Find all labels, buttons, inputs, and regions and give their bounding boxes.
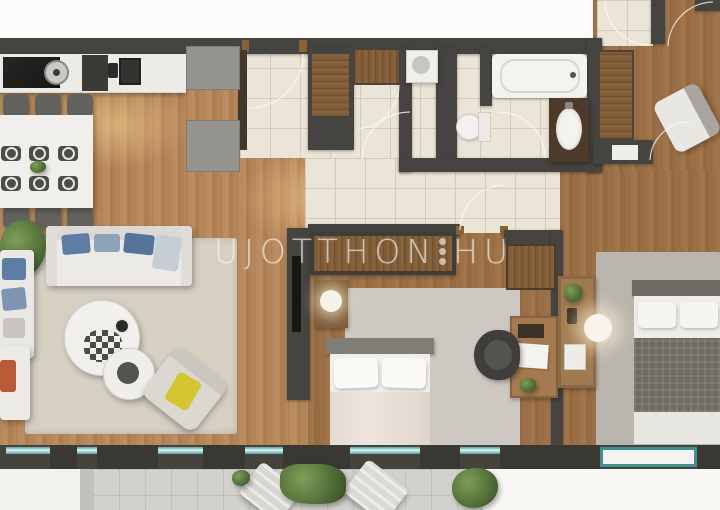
desk-papers	[515, 343, 549, 369]
window-pillar	[50, 445, 77, 469]
bed-blanket	[330, 392, 430, 447]
bed-pillow	[638, 302, 676, 328]
coffee-table-small-decor	[117, 362, 139, 384]
sofa-armrest	[181, 226, 192, 286]
washing-machine-door	[412, 56, 430, 74]
bathtub-basin	[500, 59, 580, 93]
dining-chair	[3, 94, 29, 116]
terrace-edge-strip	[80, 469, 93, 510]
wall-wc	[436, 48, 457, 164]
sofa-pillow-gray	[3, 318, 25, 338]
kitchen-appliance	[119, 58, 141, 85]
floor-study-entry-tile	[597, 0, 653, 46]
window-glass	[245, 447, 283, 454]
vanity-faucet	[565, 102, 573, 109]
sofa-pillow-blue	[2, 258, 26, 280]
office-chair-seat	[484, 340, 512, 370]
console-box	[564, 344, 586, 370]
fridge-cabinet-upper	[186, 46, 240, 90]
armchair-left-red-throw	[0, 360, 16, 392]
sofa-pillow-gray	[94, 234, 120, 252]
dining-plate	[29, 146, 49, 161]
dining-plate	[1, 176, 21, 191]
console-bottle	[567, 308, 577, 324]
watermark-colon-dots	[439, 238, 446, 265]
bed-blanket-dark	[634, 338, 720, 412]
bed-2	[632, 280, 720, 444]
desk-laptop	[518, 324, 544, 338]
fridge-cabinet-lower	[186, 120, 240, 172]
wall-study-corner	[695, 0, 720, 11]
sofa-armrest	[46, 226, 57, 286]
sofa-pillow-blue	[123, 232, 155, 255]
terrace-planter	[280, 464, 346, 504]
bed-pillow	[333, 357, 378, 389]
window-glass	[158, 447, 203, 454]
outside-top	[0, 0, 593, 38]
coffee-table-bowl	[114, 318, 130, 334]
watermark: UJOTTHON HU	[214, 232, 514, 271]
dining-chair	[67, 206, 93, 228]
dining-chair	[35, 94, 61, 116]
sofa-pillow-blue	[61, 233, 91, 255]
outside-bottom-left	[0, 469, 80, 510]
dining-table	[0, 115, 93, 208]
sofa-throw	[152, 234, 182, 271]
window-pillar	[500, 445, 600, 469]
bed-pillow	[381, 357, 426, 389]
kitchen-small-sink	[108, 63, 118, 78]
window-glass	[6, 447, 50, 454]
bed-foot-sheet	[634, 412, 720, 444]
sofa-main	[46, 226, 192, 286]
window-glass	[350, 447, 420, 454]
bed-headboard	[632, 280, 720, 296]
dining-plate	[58, 176, 78, 191]
kitchen-cabinet-dark	[82, 55, 108, 91]
floor-lamp-bedroom2	[584, 314, 612, 342]
window-glass	[460, 447, 500, 454]
watermark-text-right: HU	[453, 232, 514, 271]
window-bedroom2	[600, 447, 697, 467]
dining-plate	[1, 146, 21, 161]
nightstand-lamp	[320, 290, 342, 312]
entry-closet-wardrobe	[312, 54, 349, 116]
bed-1	[326, 338, 434, 447]
kitchen-sink-drain	[53, 69, 60, 76]
foyer-wardrobe	[353, 48, 402, 85]
window-pillar	[203, 445, 245, 469]
window-pillar	[697, 445, 720, 469]
bathtub-drain	[570, 72, 576, 78]
vanity-sink	[556, 108, 582, 150]
window-pillar	[420, 445, 460, 469]
floor-plan: UJOTTHON HU	[0, 0, 720, 510]
outside-bottom-right	[483, 469, 720, 510]
entry-door-post-right	[299, 40, 307, 52]
wall-niche	[612, 145, 638, 160]
watermark-text-left: UJOTTHON	[214, 232, 437, 271]
window-glass	[77, 447, 97, 454]
dining-plate	[29, 176, 49, 191]
dining-plate	[58, 146, 78, 161]
sofa-left	[0, 250, 34, 358]
dining-chair	[67, 94, 93, 116]
wall-study-stub	[651, 0, 665, 44]
bed-pillow	[680, 302, 718, 328]
sofa-pillow-blue	[1, 287, 27, 311]
window-pillar	[97, 445, 158, 469]
wardrobe-study	[598, 50, 634, 140]
bed-headboard	[326, 338, 434, 354]
wall-bath-left	[480, 48, 492, 106]
toilet-tank	[478, 112, 491, 142]
dining-chair	[35, 206, 61, 228]
